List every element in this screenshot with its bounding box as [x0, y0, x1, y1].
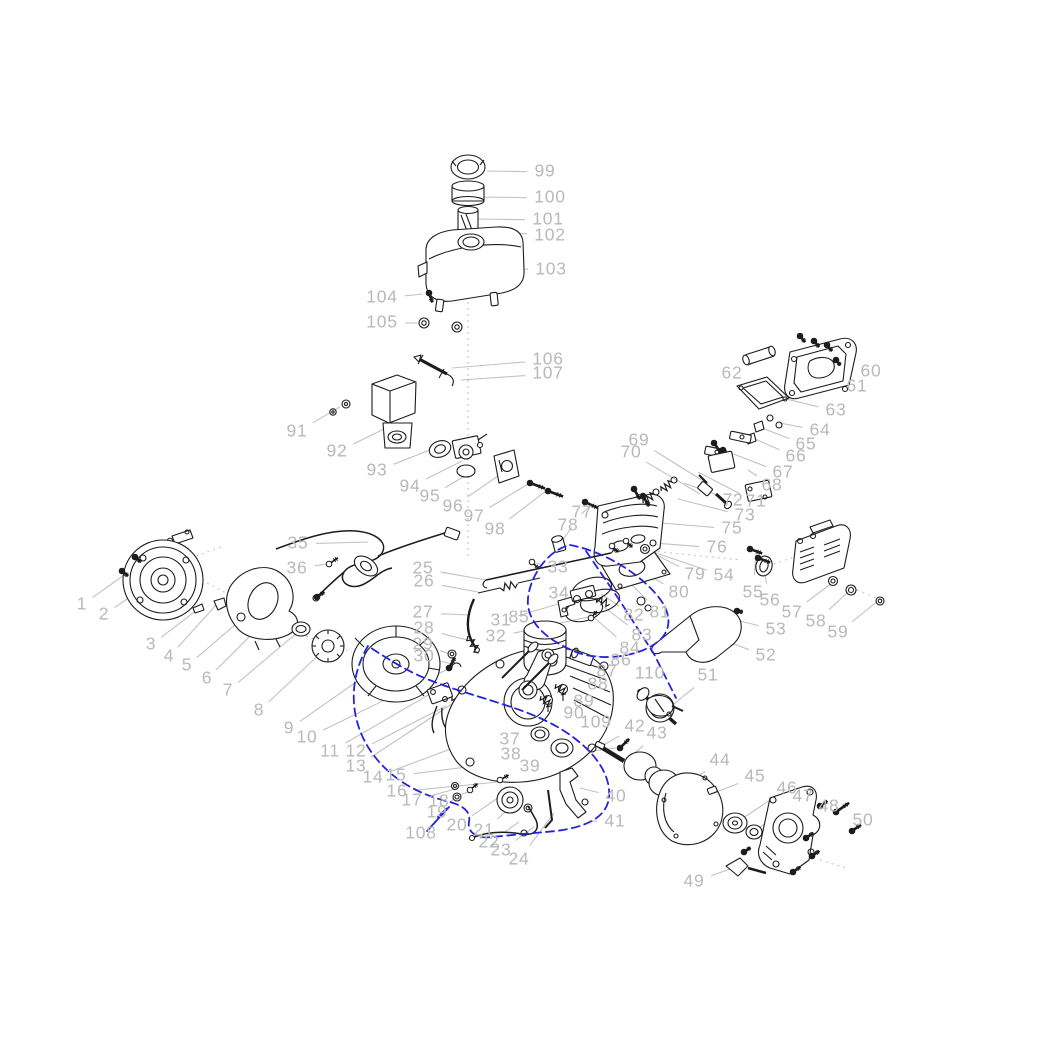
part-number-label-35: 35: [287, 533, 308, 553]
part-number-label-19: 19: [426, 802, 447, 822]
part-number-label-110: 110: [635, 663, 665, 683]
part-number-label-82: 82: [623, 605, 644, 625]
part-number-label-24: 24: [508, 849, 529, 869]
part-number-label-41: 41: [604, 811, 625, 831]
part-number-label-78: 78: [557, 515, 578, 535]
part-number-label-26: 26: [413, 571, 434, 591]
part-circle: [452, 322, 462, 332]
part-number-label-98: 98: [484, 519, 505, 539]
part-rect: [435, 299, 444, 312]
part-number-label-75: 75: [721, 518, 742, 538]
part-number-label-81: 81: [649, 602, 670, 622]
part-ellipse: [388, 431, 406, 443]
diagram-background: [0, 0, 1039, 1039]
part-number-label-45: 45: [744, 766, 765, 786]
part-ellipse: [458, 207, 478, 214]
part-number-label-94: 94: [399, 476, 420, 496]
part-number-label-95: 95: [419, 486, 440, 506]
leader-line-101: [479, 219, 525, 220]
part-number-label-102: 102: [534, 225, 566, 245]
part-circle: [846, 585, 856, 595]
part-number-label-33: 33: [547, 557, 568, 577]
part-ellipse: [746, 825, 762, 839]
part-number-label-53: 53: [765, 619, 786, 639]
part-circle: [453, 793, 461, 801]
part-circle: [158, 575, 168, 585]
part-number-label-57: 57: [781, 602, 802, 622]
part-number-label-63: 63: [825, 400, 846, 420]
part-number-label-103: 103: [535, 259, 567, 279]
part-number-label-52: 52: [755, 645, 776, 665]
part-number-label-79: 79: [684, 564, 705, 584]
part-number-label-92: 92: [326, 441, 347, 461]
part-circle: [459, 445, 473, 459]
part-rect: [490, 292, 498, 306]
part-number-label-61: 61: [846, 376, 867, 396]
part-number-label-109: 109: [580, 712, 612, 732]
part-number-label-10: 10: [296, 727, 317, 747]
part-number-label-96: 96: [442, 496, 463, 516]
part-ellipse: [458, 234, 484, 250]
part-number-label-42: 42: [624, 716, 645, 736]
part-circle: [829, 577, 838, 586]
part-number-label-58: 58: [805, 611, 826, 631]
part-number-label-50: 50: [852, 810, 873, 830]
part-circle: [312, 630, 344, 662]
part-number-label-39: 39: [519, 756, 540, 776]
part-number-label-76: 76: [706, 537, 727, 557]
part-ellipse: [292, 622, 310, 636]
part-ellipse: [451, 155, 485, 179]
part-number-label-108: 108: [405, 823, 437, 843]
part-number-label-6: 6: [202, 668, 213, 688]
part-outline: [657, 773, 723, 845]
part-ellipse: [452, 181, 484, 191]
part-number-label-99: 99: [534, 161, 555, 181]
part-number-label-14: 14: [362, 767, 383, 787]
part-circle: [342, 400, 350, 408]
part-circle: [497, 787, 523, 813]
part-number-label-85: 85: [508, 607, 529, 627]
part-number-label-38: 38: [500, 744, 521, 764]
part-number-label-104: 104: [366, 287, 398, 307]
part-number-label-54: 54: [713, 565, 734, 585]
part-circle: [330, 409, 336, 415]
part-number-label-49: 49: [683, 871, 704, 891]
part-number-label-56: 56: [759, 590, 780, 610]
part-number-label-8: 8: [254, 700, 265, 720]
part-number-label-5: 5: [182, 655, 193, 675]
part-number-label-11: 11: [320, 741, 340, 761]
exploded-parts-diagram: 1234567891011121314151617181920212223242…: [0, 0, 1039, 1039]
part-number-label-48: 48: [818, 796, 839, 816]
part-number-label-36: 36: [286, 558, 307, 578]
part-number-label-93: 93: [366, 460, 387, 480]
part-number-label-70: 70: [620, 442, 641, 462]
part-number-label-91: 91: [286, 421, 307, 441]
part-number-label-100: 100: [534, 187, 566, 207]
part-number-label-32: 32: [485, 626, 506, 646]
part-number-label-9: 9: [284, 718, 295, 738]
leader-line-100: [482, 197, 527, 198]
part-number-label-7: 7: [223, 680, 234, 700]
part-number-label-47: 47: [792, 786, 813, 806]
part-number-label-17: 17: [401, 790, 422, 810]
part-number-label-40: 40: [605, 786, 626, 806]
part-ellipse: [723, 813, 747, 833]
part-circle: [641, 545, 650, 554]
part-circle: [452, 783, 459, 790]
part-circle: [876, 597, 884, 605]
part-outline: [227, 568, 298, 640]
part-number-label-20: 20: [446, 815, 467, 835]
leader-line-99: [487, 171, 527, 172]
part-circle: [478, 443, 483, 448]
part-number-label-43: 43: [646, 723, 667, 743]
part-number-label-51: 51: [697, 665, 718, 685]
part-number-label-107: 107: [532, 363, 564, 383]
part-number-label-80: 80: [668, 582, 689, 602]
part-ellipse: [531, 727, 549, 741]
part-ellipse: [524, 621, 566, 639]
part-circle: [448, 650, 456, 658]
part-number-label-105: 105: [366, 312, 398, 332]
engine-parts-diagram-page: 1234567891011121314151617181920212223242…: [0, 0, 1039, 1039]
part-number-label-34: 34: [548, 583, 569, 603]
part-number-label-30: 30: [413, 646, 434, 666]
part-number-label-97: 97: [463, 506, 484, 526]
part-number-label-4: 4: [164, 646, 175, 666]
part-number-label-1: 1: [77, 594, 88, 614]
part-number-label-44: 44: [709, 750, 730, 770]
part-number-label-59: 59: [827, 622, 848, 642]
part-number-label-2: 2: [99, 604, 110, 624]
part-number-label-62: 62: [721, 363, 742, 383]
part-ellipse: [551, 739, 573, 757]
part-number-label-3: 3: [146, 634, 157, 654]
part-ellipse: [457, 465, 475, 477]
part-circle: [419, 318, 429, 328]
